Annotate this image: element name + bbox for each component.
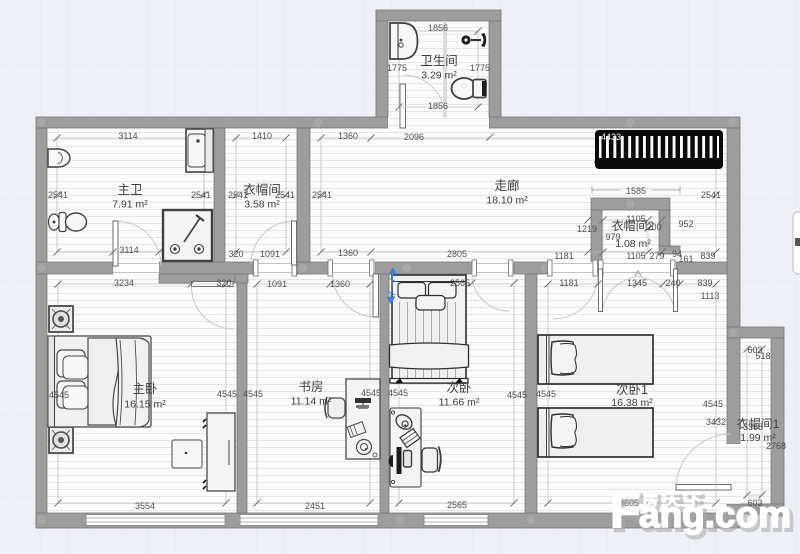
svg-text:11.66 m²: 11.66 m²: [439, 397, 480, 409]
svg-text:3234: 3234: [114, 278, 134, 288]
svg-text:2541: 2541: [275, 190, 295, 200]
svg-text:F: F: [610, 482, 639, 538]
svg-text:1360: 1360: [330, 279, 350, 289]
svg-text:200: 200: [646, 222, 661, 232]
svg-text:1.08 m²: 1.08 m²: [615, 238, 651, 250]
svg-text:16.38 m²: 16.38 m²: [611, 397, 653, 409]
svg-text:2768: 2768: [766, 441, 786, 451]
svg-text:4545: 4545: [217, 389, 237, 399]
svg-text:3.29 m²: 3.29 m²: [421, 70, 457, 82]
svg-text:主卫: 主卫: [117, 183, 142, 197]
svg-text:2096: 2096: [404, 132, 424, 142]
svg-text:3368: 3368: [743, 422, 763, 432]
svg-text:7.91 m²: 7.91 m²: [112, 199, 148, 211]
svg-text:1113: 1113: [701, 291, 720, 301]
svg-text:839: 839: [697, 278, 712, 288]
svg-text:2805: 2805: [447, 249, 467, 259]
svg-text:320: 320: [228, 249, 243, 259]
svg-text:4433: 4433: [601, 132, 621, 142]
svg-text:书房: 书房: [298, 379, 323, 394]
svg-text:4545: 4545: [507, 390, 527, 400]
svg-text:1360: 1360: [338, 131, 358, 141]
svg-text:16.15 m²: 16.15 m²: [124, 399, 166, 411]
svg-text:ang.com: ang.com: [639, 494, 791, 535]
svg-text:1345: 1345: [627, 278, 647, 288]
svg-text:1091: 1091: [260, 249, 280, 259]
svg-text:卫生间: 卫生间: [420, 54, 458, 68]
svg-text:1856: 1856: [428, 23, 448, 33]
svg-text:4545: 4545: [536, 389, 556, 399]
svg-text:1219: 1219: [577, 224, 597, 234]
svg-text:2541: 2541: [48, 190, 68, 200]
svg-text:952: 952: [678, 219, 693, 229]
svg-text:4545: 4545: [388, 388, 408, 398]
svg-text:1105: 1105: [626, 251, 645, 261]
svg-text:2541: 2541: [701, 190, 721, 200]
svg-text:18.10 m²: 18.10 m²: [486, 195, 528, 207]
svg-text:839: 839: [700, 251, 715, 261]
svg-text:2451: 2451: [305, 501, 325, 511]
svg-text:518: 518: [755, 351, 770, 361]
svg-text:320: 320: [216, 278, 231, 288]
svg-text:1181: 1181: [559, 278, 578, 288]
svg-text:3554: 3554: [135, 501, 155, 511]
svg-text:1856: 1856: [428, 101, 448, 111]
svg-text:3432: 3432: [706, 417, 726, 427]
svg-text:4545: 4545: [49, 390, 69, 400]
svg-text:主卧: 主卧: [132, 382, 157, 396]
svg-text:1585: 1585: [626, 186, 646, 196]
svg-text:11.14 m²: 11.14 m²: [291, 396, 332, 408]
svg-text:240: 240: [665, 278, 680, 288]
svg-text:1105: 1105: [626, 214, 645, 224]
svg-text:4545: 4545: [243, 389, 263, 399]
svg-text:2541: 2541: [191, 190, 211, 200]
svg-text:1360: 1360: [338, 248, 358, 258]
svg-text:1091: 1091: [267, 279, 287, 289]
svg-text:2541: 2541: [312, 190, 332, 200]
svg-text:4545: 4545: [361, 388, 381, 398]
svg-text:3114: 3114: [119, 245, 138, 255]
svg-text:161: 161: [678, 254, 693, 264]
svg-text:279: 279: [649, 251, 664, 261]
svg-text:2541: 2541: [228, 190, 248, 200]
svg-text:次卧: 次卧: [446, 381, 471, 395]
svg-text:2565: 2565: [450, 278, 470, 288]
svg-text:2565: 2565: [447, 500, 467, 510]
svg-text:走廊: 走廊: [494, 178, 519, 193]
svg-text:1181: 1181: [554, 251, 573, 261]
svg-text:4545: 4545: [703, 399, 723, 409]
svg-text:1410: 1410: [252, 131, 272, 141]
svg-text:3114: 3114: [118, 131, 137, 141]
svg-text:1775: 1775: [470, 63, 490, 73]
svg-text:979: 979: [605, 232, 620, 242]
svg-text:3.58 m²: 3.58 m²: [244, 199, 280, 211]
svg-text:次卧1: 次卧1: [616, 383, 648, 397]
svg-text:1775: 1775: [387, 63, 407, 73]
